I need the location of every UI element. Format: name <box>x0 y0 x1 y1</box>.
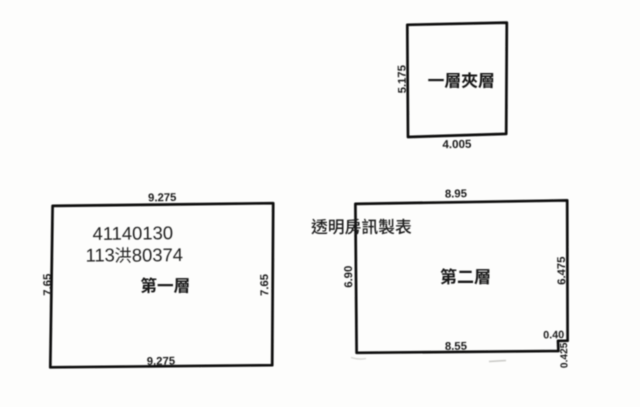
svg-text:9.275: 9.275 <box>148 192 176 204</box>
svg-text:0.40: 0.40 <box>543 329 564 341</box>
svg-text:41140130: 41140130 <box>92 222 173 244</box>
svg-text:80374: 80374 <box>132 244 183 266</box>
svg-text:9.275: 9.275 <box>147 356 175 368</box>
svg-text:8.55: 8.55 <box>445 341 467 353</box>
svg-text:5.175: 5.175 <box>396 65 408 93</box>
svg-text:7.65: 7.65 <box>42 274 54 296</box>
svg-text:6.475: 6.475 <box>556 256 568 284</box>
svg-text:6.90: 6.90 <box>343 266 355 288</box>
svg-text:7.65: 7.65 <box>259 274 271 296</box>
svg-text:0.425: 0.425 <box>559 342 570 368</box>
svg-text:113: 113 <box>85 244 115 265</box>
svg-text:8.95: 8.95 <box>445 188 467 200</box>
svg-text:4.005: 4.005 <box>442 138 472 152</box>
